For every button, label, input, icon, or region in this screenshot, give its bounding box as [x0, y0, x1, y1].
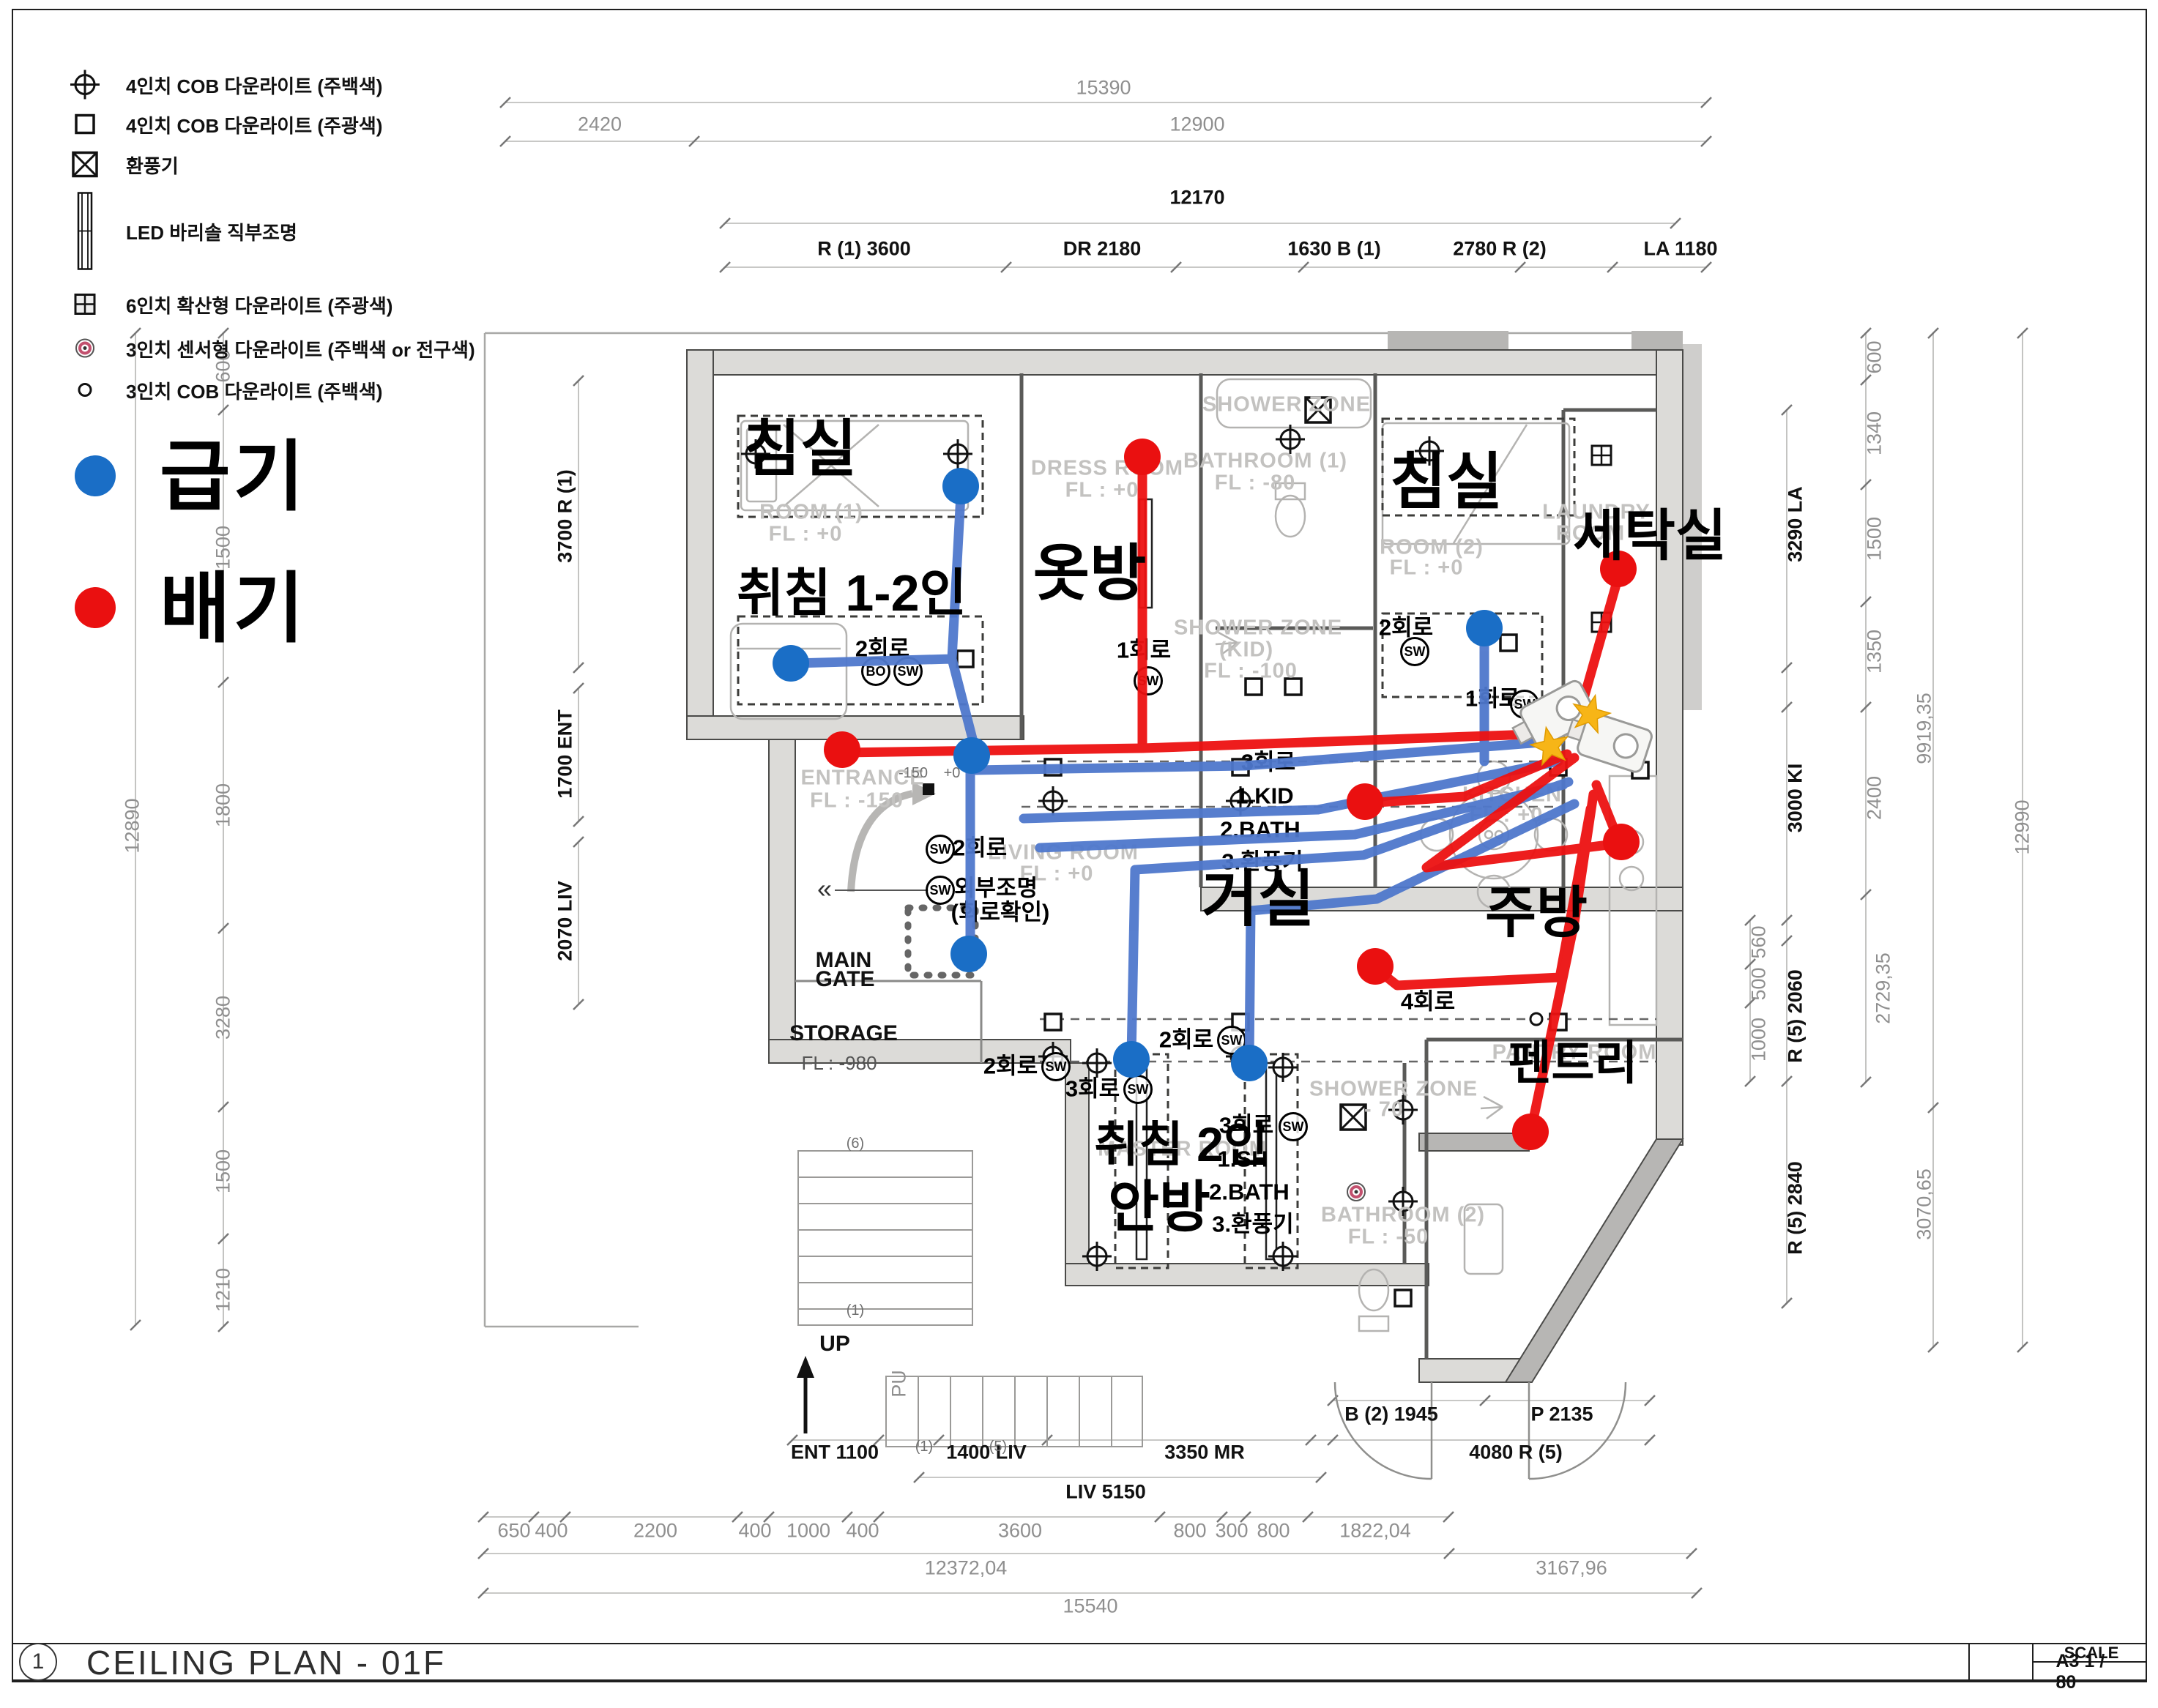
room-overlay-label: 주방 [1485, 886, 1588, 941]
room-overlay-label: 세탁실 [1573, 509, 1727, 564]
room-overlay-label: 침실 [1390, 451, 1503, 512]
exhaust-air-dot [75, 587, 116, 628]
drawing-sheet: 15390 2420 12900 12170 R (1) 3600 DR 218… [0, 0, 2158, 1708]
room-overlay-label: 옷방 [1033, 542, 1147, 604]
drawing-number-badge: 1 [19, 1643, 57, 1681]
room-overlay-label: 안방 [1108, 1180, 1210, 1236]
room-overlay-label: 취침 2인 [1094, 1120, 1268, 1168]
supply-air-label: 급기 [160, 439, 307, 516]
hvac-duct-overlay [0, 0, 2158, 1708]
heat-recovery-ventilator [1506, 679, 1653, 774]
title-block-divider [1968, 1643, 1970, 1681]
room-overlay-label: 침실 [744, 418, 857, 480]
supply-air-dot [75, 455, 116, 496]
room-overlay-label: 취침 1-2인 [737, 567, 967, 619]
room-overlay-label: 거실 [1202, 868, 1315, 930]
room-overlay-label: 펜트리 [1508, 1040, 1638, 1086]
drawing-title: CEILING PLAN - 01F [86, 1643, 446, 1682]
scale-value: A3 1 / 80 [2056, 1651, 2124, 1693]
exhaust-air-label: 배기 [160, 571, 307, 648]
